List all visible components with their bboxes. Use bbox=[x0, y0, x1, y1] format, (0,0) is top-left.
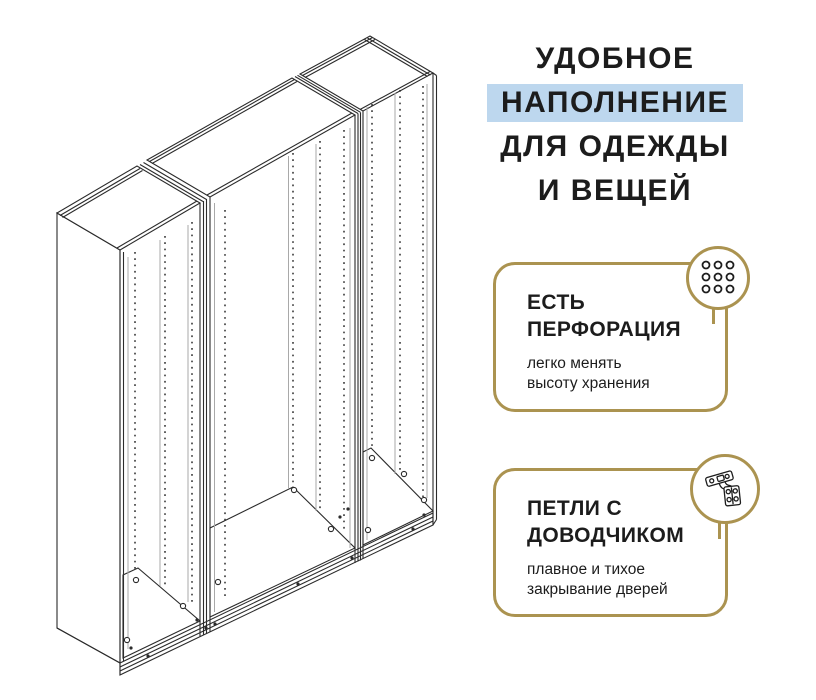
hinge-icon bbox=[701, 465, 749, 513]
headline-line-3: ДЛЯ ОДЕЖДЫ bbox=[420, 125, 810, 169]
feature-desc-line: легко менять bbox=[527, 354, 707, 374]
fitting-hole bbox=[124, 637, 129, 642]
feature-desc-line: плавное и тихое bbox=[527, 560, 707, 580]
perforation-grid-icon bbox=[697, 257, 739, 299]
hinge-icon-circle bbox=[690, 454, 760, 524]
headline: УДОБНОЕ НАПОЛНЕНИЕ ДЛЯ ОДЕЖДЫ И ВЕЩЕЙ bbox=[420, 37, 810, 213]
headline-line-4: И ВЕЩЕЙ bbox=[420, 169, 810, 213]
feature-title-line: ДОВОДЧИКОМ bbox=[527, 522, 707, 549]
wardrobe-frame-illustration bbox=[0, 0, 490, 700]
feature-desc-line: закрывание дверей bbox=[527, 580, 707, 600]
feature-desc-line: высоту хранения bbox=[527, 374, 707, 394]
fitting-hole bbox=[401, 471, 406, 476]
feature-description: легко менять высоту хранения bbox=[527, 354, 707, 394]
headline-line-1: УДОБНОЕ bbox=[420, 37, 810, 81]
wardrobe-panel bbox=[147, 78, 355, 197]
fitting-hole bbox=[365, 527, 370, 532]
feature-title: ПЕТЛИ С ДОВОДЧИКОМ bbox=[527, 495, 707, 549]
fitting-hole bbox=[133, 577, 138, 582]
fitting-hole bbox=[328, 526, 333, 531]
fitting-hole bbox=[215, 579, 220, 584]
headline-line-2: НАПОЛНЕНИЕ bbox=[420, 81, 810, 125]
feature-title-line: ПЕРФОРАЦИЯ bbox=[527, 316, 707, 343]
feature-title-line: ПЕТЛИ С bbox=[527, 495, 707, 522]
fitting-hole bbox=[421, 497, 426, 502]
feature-title-line: ЕСТЬ bbox=[527, 289, 707, 316]
feature-description: плавное и тихое закрывание дверей bbox=[527, 560, 707, 600]
headline-highlight: НАПОЛНЕНИЕ bbox=[487, 84, 743, 122]
fitting-hole bbox=[291, 487, 296, 492]
product-infographic: УДОБНОЕ НАПОЛНЕНИЕ ДЛЯ ОДЕЖДЫ И ВЕЩЕЙ ЕС… bbox=[0, 0, 816, 700]
wardrobe-panel bbox=[57, 213, 120, 663]
perforation-icon-circle bbox=[686, 246, 750, 310]
feature-title: ЕСТЬ ПЕРФОРАЦИЯ bbox=[527, 289, 707, 343]
fitting-hole bbox=[369, 455, 374, 460]
fitting-hole bbox=[180, 603, 185, 608]
